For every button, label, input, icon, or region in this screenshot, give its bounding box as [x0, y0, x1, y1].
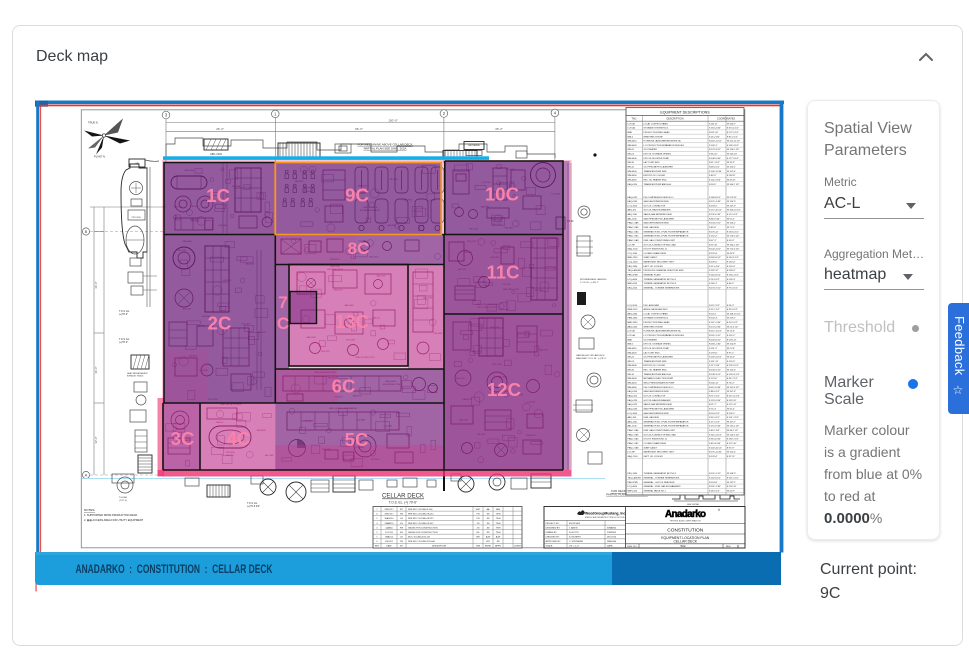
svg-text:LCP-4B: LCP-4B [628, 123, 636, 125]
svg-text:KBQ-4110: KBQ-4110 [628, 287, 638, 289]
svg-text:DWG. NO.:: DWG. NO.: [627, 546, 638, 548]
svg-text:DRAWN BY:: DRAWN BY: [546, 531, 558, 534]
svg-text:DRY OIL STORAGE VESSEL: DRY OIL STORAGE VESSEL [644, 343, 672, 346]
svg-text:4JAN10: 4JAN10 [385, 526, 393, 529]
svg-text:OIL TREATER: OIL TREATER [644, 338, 658, 341]
svg-text:W 176'-3 1/2": W 176'-3 1/2" [727, 236, 740, 238]
svg-text:LOCAL CONTROL PANEL: LOCAL CONTROL PANEL [644, 312, 669, 315]
svg-text:S 58'-9 1/2": S 58'-9 1/2" [709, 491, 720, 493]
svg-text:E 117'-11 1/2": E 117'-11 1/2" [727, 395, 740, 397]
svg-text:S 114'-4 3/4": S 114'-4 3/4" [709, 179, 721, 181]
svg-text:PBQ-1330: PBQ-1330 [628, 473, 639, 475]
svg-text:DESCRIPTION: DESCRIPTION [666, 118, 683, 121]
svg-text:LACT UNIT SKID: LACT UNIT SKID [644, 351, 661, 354]
svg-text:PBA-1 OAS: PBA-1 OAS [628, 446, 640, 449]
svg-text:N 160'-11": N 160'-11" [709, 383, 719, 385]
svg-text:WE-20: WE-20 [628, 149, 635, 151]
svg-text:PBA-1 OAC: PBA-1 OAC [628, 438, 640, 441]
svg-text:JW: JW [487, 523, 490, 525]
svg-text:KAQ-0125: KAQ-0125 [628, 196, 639, 199]
svg-text:REC. OIL HEATER SKID: REC. OIL HEATER SKID [644, 369, 668, 372]
svg-text:WM-4040: WM-4040 [628, 171, 638, 173]
svg-text:W 137'-1": W 137'-1" [727, 482, 736, 484]
svg-text:GENERATOR NO.1 FUEL FILTER/SEP: GENERATOR NO.1 FUEL FILTER/SEPARATOR [644, 230, 689, 233]
svg-text:TAG: TAG [632, 118, 637, 121]
svg-text:7: 7 [278, 293, 287, 312]
svg-text:N 162'-11 1/2": N 162'-11 1/2" [709, 141, 722, 143]
svg-text:8C: 8C [348, 239, 370, 258]
svg-text:S 133'-11 1/2": S 133'-11 1/2" [709, 357, 722, 359]
svg-text:N 133'-4": N 133'-4" [709, 456, 718, 458]
svg-text:S 80'-1 3/4": S 80'-1 3/4" [709, 430, 720, 432]
svg-text:S 131'-2": S 131'-2" [709, 348, 718, 350]
svg-text:S 161'-8": S 161'-8" [709, 123, 718, 125]
svg-text:W 151'-4": W 151'-4" [727, 171, 736, 173]
svg-text:S 168'-8 1/2": S 168'-8 1/2" [709, 197, 721, 199]
svg-text:9: 9 [737, 544, 739, 548]
svg-text:MOC #DC480-2013-147: MOC #DC480-2013-147 [408, 537, 431, 539]
svg-text:CELLAR DECK: CELLAR DECK [673, 540, 697, 544]
svg-text:E 100'-3": E 100'-3" [727, 279, 736, 281]
svg-text:W 152'-6": W 152'-6" [727, 370, 736, 372]
svg-text:18AUG04: 18AUG04 [607, 540, 617, 543]
svg-text:S 85'-10 3/4": S 85'-10 3/4" [709, 443, 721, 445]
svg-text:W 110'-2 1/2": W 110'-2 1/2" [727, 426, 740, 428]
svg-text:W 119'-1": W 119'-1" [727, 318, 736, 320]
svg-text:N 176'-11": N 176'-11" [709, 231, 719, 233]
svg-text:KAQ-0120: KAQ-0120 [628, 399, 639, 402]
svg-text:S 17'-5 1/2": S 17'-5 1/2" [709, 421, 720, 423]
svg-text:ABQ-1110: ABQ-1110 [628, 420, 638, 423]
svg-text:5C: 5C [345, 429, 369, 450]
svg-text:WM-4040: WM-4040 [628, 378, 638, 380]
svg-text:9C: 9C [345, 185, 369, 206]
svg-text:1NOV01: 1NOV01 [385, 541, 394, 543]
svg-text:S 132'-8 1/2": S 132'-8 1/2" [709, 478, 721, 480]
svg-text:S 96'-10": S 96'-10" [709, 154, 718, 156]
svg-text:OIL PIPELINE PIG LAUNCHER: OIL PIPELINE PIG LAUNCHER [644, 356, 674, 359]
svg-text:E 154'-11": E 154'-11" [727, 486, 737, 488]
svg-text:PER MOC #DC480-OP-012: PER MOC #DC480-OP-012 [408, 523, 434, 525]
svg-text:PBE-1PM2: PBE-1PM2 [628, 275, 639, 277]
svg-text:27APR04: 27APR04 [607, 531, 617, 534]
svg-text:PBA-1 OAC: PBA-1 OAC [628, 230, 640, 233]
svg-text:N 121'-4 3/4": N 121'-4 3/4" [709, 201, 721, 203]
svg-text:WM-4050: WM-4050 [628, 175, 638, 177]
svg-text:N 53'-0 1/2": N 53'-0 1/2" [709, 413, 720, 415]
svg-text:ENGR: ENGR [485, 546, 491, 548]
svg-text:DRY OIL STORAGE VESSEL: DRY OIL STORAGE VESSEL [644, 153, 672, 156]
svg-text:3C: 3C [171, 428, 195, 449]
svg-text:CHECKED BY:: CHECKED BY: [546, 537, 560, 539]
svg-text:1C: 1C [206, 185, 230, 206]
svg-text:WM-4050: WM-4050 [628, 383, 638, 385]
svg-text:TWH: TWH [496, 523, 501, 525]
svg-text:PROJECT NO.: PROJECT NO. [546, 523, 560, 525]
svg-text:LANDING AT CELLAR DECK: LANDING AT CELLAR DECK [576, 354, 605, 357]
svg-text:LCQ-4000: LCQ-4000 [628, 279, 638, 281]
svg-text:PBA-1 OAK: PBA-1 OAK [628, 222, 640, 225]
svg-text:LCQ-2010: LCQ-2010 [628, 305, 638, 307]
svg-text:N 48'-0 1/2": N 48'-0 1/2" [709, 167, 720, 169]
svg-text:JW: JW [487, 514, 490, 516]
svg-text:MBD: MBD [628, 339, 633, 341]
svg-text:E 163'-5 1/2": E 163'-5 1/2" [727, 231, 739, 233]
svg-text:WE-10: WE-10 [628, 374, 635, 376]
svg-text:MBL6: MBL6 [628, 136, 634, 138]
svg-text:WE-24: WE-24 [628, 361, 635, 363]
svg-text:E 136'-3 1/2": E 136'-3 1/2" [727, 145, 739, 147]
svg-text:MBL6: MBL6 [628, 344, 634, 346]
svg-text:PER MOC #DC480-OR-212: PER MOC #DC480-OR-212 [408, 518, 434, 520]
svg-text:N. BOTTS: N. BOTTS [569, 532, 579, 534]
svg-text:E 177'-3 1/2": E 177'-3 1/2" [727, 158, 739, 160]
svg-text:PBA-1 OBK: PBA-1 OBK [628, 433, 640, 436]
svg-text:W 172'-6 1/2": W 172'-6 1/2" [727, 249, 740, 251]
svg-text:WATER MIST RECOVERY UNIT: WATER MIST RECOVERY UNIT [644, 451, 675, 454]
svg-text:AJW: AJW [486, 536, 490, 539]
svg-text:CLOSED DRAIN DRUM: CLOSED DRAIN DRUM [644, 442, 667, 445]
svg-text:JW: JW [497, 541, 500, 543]
svg-text:WM-4060: WM-4060 [628, 179, 638, 181]
svg-text:W 45'-2": W 45'-2" [727, 408, 735, 410]
svg-text:45'-0": 45'-0" [495, 127, 503, 131]
svg-text:PER MOC #DC480-OR-212: PER MOC #DC480-OR-212 [408, 514, 434, 516]
svg-text:4307/13463: 4307/13463 [569, 523, 581, 525]
svg-text:W 107'-7": W 107'-7" [727, 421, 736, 423]
svg-text:S 129'-9 3/4": S 129'-9 3/4" [709, 400, 721, 402]
svg-text:E 163'-8": E 163'-8" [727, 175, 736, 177]
svg-text:Anadarko: Anadarko [665, 509, 706, 520]
svg-text:12C: 12C [487, 379, 521, 400]
svg-text:REV.:: REV.: [726, 546, 732, 548]
svg-text:MBK-2420: MBK-2420 [628, 322, 639, 324]
svg-text:S 122'-2": S 122'-2" [709, 236, 718, 238]
svg-text:UTILITY STATION NO.11: UTILITY STATION NO.11 [644, 248, 668, 251]
svg-text:WE-10: WE-10 [628, 167, 635, 169]
svg-text:T.O.S. EL. (+)85'-7": T.O.S. EL. (+)85'-7" [580, 282, 599, 284]
svg-text:SALES GAS METERING SKID: SALES GAS METERING SKID [644, 403, 673, 406]
svg-text:S 144'-8 1/2": S 144'-8 1/2" [709, 275, 721, 277]
svg-text:ISSUED FOR CONSTRUCTION: ISSUED FOR CONSTRUCTION [408, 527, 438, 529]
svg-text:TURBINE GENERATOR SET NO.1: TURBINE GENERATOR SET NO.1 [644, 278, 678, 281]
svg-text:SUMP CADDY: SUMP CADDY [644, 446, 658, 449]
svg-text:E 119'-2": E 119'-2" [727, 335, 736, 337]
svg-text:PIG COMPRESSOR SKID NO.1: PIG COMPRESSOR SKID NO.1 [644, 197, 675, 199]
svg-text:WM-4030: WM-4030 [628, 158, 638, 160]
svg-text:E 150'-5": E 150'-5" [727, 361, 736, 363]
svg-text:E 15'-5 1/2": E 15'-5 1/2" [727, 214, 738, 216]
svg-text:WBF-2110: WBF-2110 [628, 309, 639, 311]
svg-text:ENERGY AND INFRASTRUCTURE SOLU: ENERGY AND INFRASTRUCTURE SOLUTIONS [585, 516, 625, 519]
svg-text:N 155'-6": N 155'-6" [709, 253, 718, 255]
svg-text:ABL-1100: ABL-1100 [628, 425, 638, 428]
svg-text:S 133'-11": S 133'-11" [709, 270, 719, 272]
svg-text:WM-4030: WM-4030 [628, 365, 638, 367]
svg-text:MBD: MBD [628, 132, 633, 134]
svg-text:ABQ-1110: ABQ-1110 [628, 213, 638, 216]
svg-text:CELLAR DECK: CELLAR DECK [382, 494, 424, 500]
svg-text:N 104'-9 1/2": N 104'-9 1/2" [709, 223, 721, 225]
svg-text:E 59'-11 1/2": E 59'-11 1/2" [727, 128, 739, 130]
svg-text:S 89'-8": S 89'-8" [709, 227, 717, 229]
svg-text:ABQ-2420: ABQ-2420 [628, 325, 639, 328]
svg-text:S 104'-10 1/2": S 104'-10 1/2" [709, 447, 722, 449]
svg-text:TURBINE GENERATOR SET NO.2: TURBINE GENERATOR SET NO.2 [644, 282, 678, 285]
svg-text:WALKWAY T.O.S. EL. (+)79'-0": WALKWAY T.O.S. EL. (+)79'-0" [576, 357, 606, 360]
svg-text:13C: 13C [335, 311, 369, 332]
svg-text:E 101'-7 1/2": E 101'-7 1/2" [727, 417, 739, 419]
svg-text:LCT-HP: LCT-HP [628, 244, 636, 246]
svg-text:N 86'-9 3/4": N 86'-9 3/4" [709, 218, 720, 220]
svg-text:PER MOC #DC480-2011-046: PER MOC #DC480-2011-046 [408, 541, 436, 543]
svg-text:PRODUCTION WELLHEAD: PRODUCTION WELLHEAD [644, 131, 670, 134]
svg-text:E 138'-4": E 138'-4" [727, 270, 736, 272]
svg-text:DRY OIL BOOSTER PUMP: DRY OIL BOOSTER PUMP [644, 348, 670, 350]
svg-text:S 22'-1 1/2": S 22'-1 1/2" [709, 309, 720, 311]
svg-text:N 148'-9 3/4": N 148'-9 3/4" [709, 158, 721, 160]
svg-text:S 89'-0": S 89'-0" [709, 175, 717, 177]
svg-text:N 175'-11 3/4": N 175'-11 3/4" [709, 452, 722, 454]
svg-text:EXPORT OIL COOLER: EXPORT OIL COOLER [644, 365, 666, 367]
svg-text:GENERAL PLANT: GENERAL PLANT [644, 274, 662, 277]
svg-text:APPROVED BY:: APPROVED BY: [546, 540, 562, 543]
svg-text:6C: 6C [332, 376, 356, 397]
svg-text:TURBINE GENERATOR SET NO.2: TURBINE GENERATOR SET NO.2 [644, 472, 678, 475]
svg-text:GAQ-7100: GAQ-7100 [628, 248, 639, 251]
svg-text:LCP-4A: LCP-4A [628, 334, 636, 337]
svg-text:FLOWLINE LAUNCHER/RECEIVER 1A: FLOWLINE LAUNCHER/RECEIVER 1A [644, 330, 682, 333]
svg-text:S 96'-10 3/4": S 96'-10 3/4" [709, 439, 721, 441]
svg-text:DATE: DATE [386, 545, 392, 548]
svg-text:(+)78'-0": (+)78'-0" [119, 313, 128, 316]
svg-text:W 172'-11": W 172'-11" [727, 197, 737, 199]
svg-text:SALES GAS METERING SKID: SALES GAS METERING SKID [644, 213, 673, 216]
svg-text:FUEL GAS SKID: FUEL GAS SKID [644, 416, 660, 419]
svg-text:GAS DEHYDRATION SKID: GAS DEHYDRATION SKID [644, 200, 670, 203]
svg-text:30MAR04: 30MAR04 [607, 526, 617, 529]
svg-text:E 80'-2": E 80'-2" [727, 283, 735, 285]
svg-text:T. AIKEN: T. AIKEN [569, 526, 578, 529]
svg-text:10C: 10C [485, 184, 519, 205]
svg-text:PBA-1 OAS: PBA-1 OAS [628, 239, 640, 242]
svg-text:E 126'-9 1/2": E 126'-9 1/2" [727, 365, 739, 367]
svg-text:PBA-1 OBC: PBA-1 OBC [628, 235, 640, 238]
svg-text:E 175'-10": E 175'-10" [727, 443, 737, 445]
svg-text:A: A [85, 473, 88, 478]
svg-text:N 142'-4 1/2": N 142'-4 1/2" [709, 249, 721, 251]
svg-text:MBF-0110: MBF-0110 [628, 491, 638, 493]
svg-text:W 107'-3": W 107'-3" [727, 391, 736, 393]
svg-text:W 49'-11": W 49'-11" [727, 179, 736, 181]
svg-text:DEPT. OIL COOLER: DEPT. OIL COOLER [644, 456, 664, 458]
svg-text:KAQ-0110: KAQ-0110 [628, 183, 638, 186]
svg-text:W 23'-5 1/2": W 23'-5 1/2" [727, 326, 739, 328]
svg-text:WATER MIST RECOVERY UNIT: WATER MIST RECOVERY UNIT [644, 261, 675, 264]
svg-text:E 32'-8 1/2": E 32'-8 1/2" [727, 309, 738, 311]
svg-text:LCQ-4000: LCQ-4000 [628, 486, 638, 488]
svg-text:GENERAL - TURBINE GENERATORS: GENERAL - TURBINE GENERATORS [644, 286, 680, 289]
svg-text:30AUG10: 30AUG10 [385, 517, 395, 520]
svg-text:N 117'-11 1/2": N 117'-11 1/2" [709, 331, 722, 333]
svg-text:N 71'-5 1/2": N 71'-5 1/2" [709, 395, 720, 397]
svg-text:36'-0": 36'-0" [94, 281, 98, 288]
svg-text:(+)78'-0": (+)78'-0" [119, 341, 128, 344]
svg-text:W 14'-3": W 14'-3" [727, 331, 735, 333]
svg-text:AJW: AJW [496, 536, 500, 539]
svg-text:FUEL GAS SKID: FUEL GAS SKID [644, 226, 660, 229]
svg-text:CHK: CHK [476, 546, 481, 548]
svg-text:ABL-1100: ABL-1100 [628, 217, 638, 220]
svg-text:GENERATOR NO.1 FUEL FILTER/SEP: GENERATOR NO.1 FUEL FILTER/SEPARATOR [644, 420, 689, 423]
svg-text:N 102'-4": N 102'-4" [709, 318, 718, 320]
svg-text:TRANSFER PUMP AND HLA: TRANSFER PUMP AND HLA [644, 183, 672, 186]
svg-text:ZG: ZG [400, 523, 403, 525]
svg-text:APPR: APPR [495, 545, 501, 548]
svg-text:WM-4010: WM-4010 [628, 141, 638, 143]
svg-text:PRODUCTION WELLHEAD: PRODUCTION WELLHEAD [644, 321, 670, 324]
svg-text:W 116'-1": W 116'-1" [727, 167, 736, 169]
svg-text:INTERMEDIATE LANDING: INTERMEDIATE LANDING [580, 278, 607, 281]
svg-text:PW: PW [400, 527, 403, 529]
svg-text:B: B [85, 229, 88, 234]
svg-text:S. RICHERT: S. RICHERT [569, 537, 581, 539]
svg-text:WE-20: WE-20 [628, 357, 635, 359]
svg-text:T.O.S. EL. (+) 70'-6": T.O.S. EL. (+) 70'-6" [389, 501, 417, 505]
svg-text:E 78'-3": E 78'-3" [727, 383, 735, 385]
svg-text:N 67'-1": N 67'-1" [709, 240, 717, 242]
svg-text:L.P. PRODUCTION SEPARATOR MODU: L.P. PRODUCTION SEPARATOR MODULE [644, 144, 685, 147]
svg-text:W 160'-2 1/2": W 160'-2 1/2" [727, 244, 740, 246]
svg-text:W 32'-0": W 32'-0" [727, 357, 735, 359]
svg-text:LCQ-1000: LCQ-1000 [628, 205, 638, 207]
svg-text:PBQ-1330: PBQ-1330 [628, 266, 639, 268]
svg-text:WM-4010: WM-4010 [628, 348, 638, 350]
svg-text:ISSUED FOR CONSTRUCTION: ISSUED FOR CONSTRUCTION [408, 532, 438, 534]
svg-text:WR: WR [476, 537, 480, 539]
svg-text:S 130'-4 3/4": S 130'-4 3/4" [709, 128, 721, 130]
svg-text:96'-0": 96'-0" [355, 127, 363, 131]
svg-text:GENERAL VALVE NO.1: GENERAL VALVE NO.1 [644, 490, 667, 493]
svg-text:WE-30: WE-30 [628, 162, 635, 164]
svg-text:S 21'-0 3/4": S 21'-0 3/4" [709, 266, 720, 268]
svg-text:28OCT04: 28OCT04 [607, 537, 617, 539]
svg-text:E 120'-9": E 120'-9" [727, 266, 736, 268]
svg-text:46'-0": 46'-0" [216, 127, 224, 131]
svg-text:E 141'-5 1/2": E 141'-5 1/2" [727, 478, 739, 480]
svg-text:ABC-1332: ABC-1332 [210, 152, 223, 156]
svg-text:PBA-1 OBK: PBA-1 OBK [628, 226, 640, 229]
svg-text:W 49'-3": W 49'-3" [727, 253, 735, 255]
svg-text:36'-0": 36'-0" [94, 366, 98, 373]
svg-text:29NOV17: 29NOV17 [385, 509, 395, 511]
svg-text:N 161'-1 3/4": N 161'-1 3/4" [709, 486, 721, 488]
svg-text:PETROLEUM CORPORATION: PETROLEUM CORPORATION [670, 520, 701, 523]
svg-text:TWH: TWH [496, 514, 501, 516]
svg-text:N 161'-1 1/2": N 161'-1 1/2" [709, 335, 721, 337]
svg-text:TWH: TWH [496, 527, 501, 529]
svg-text:MBK-1220: MBK-1220 [628, 257, 639, 259]
svg-text:N 149'-5": N 149'-5" [709, 262, 718, 264]
svg-text:GENERATOR NO.2 FUEL FILTER/SEP: GENERATOR NO.2 FUEL FILTER/SEPARATOR [644, 425, 689, 428]
svg-text:EQUIPMENT DESCRIPTIONS: EQUIPMENT DESCRIPTIONS [660, 110, 710, 114]
svg-text:GLYCOL/GAS EXCHANGER: GLYCOL/GAS EXCHANGER [644, 399, 671, 402]
svg-text:TRUE N.: TRUE N. [88, 121, 99, 125]
svg-text:WELL PRESSURIZATION PUMP: WELL PRESSURIZATION PUMP [644, 382, 675, 385]
svg-text:WE-30: WE-30 [628, 370, 635, 372]
svg-text:PBA-1 OAK: PBA-1 OAK [628, 429, 640, 432]
svg-text:TWH: TWH [496, 518, 501, 520]
svg-text:TBQ-LADDER: TBQ-LADDER [628, 477, 642, 480]
svg-text:W 150'-5": W 150'-5" [727, 201, 736, 203]
svg-text:1/8" = 1'-0": 1/8" = 1'-0" [569, 546, 579, 548]
svg-text:SUMP CADDY: SUMP CADDY [644, 256, 658, 259]
svg-text:OIL TREATER: OIL TREATER [644, 148, 658, 151]
svg-text:LCP-4A: LCP-4A [628, 127, 636, 130]
svg-text:TWH: TWH [496, 532, 501, 534]
svg-text:GLYCOL/CONTACTOR SKID GAS: GLYCOL/CONTACTOR SKID GAS [644, 243, 677, 246]
svg-text:E 180'-7 1/2": E 180'-7 1/2" [727, 439, 739, 441]
svg-text:N 135'-0 3/4": N 135'-0 3/4" [709, 214, 721, 216]
svg-text:GENERAL - FUEL GAS EXCHANGERS: GENERAL - FUEL GAS EXCHANGERS [644, 485, 682, 488]
svg-text:DRY OIL BOOSTER PUMP: DRY OIL BOOSTER PUMP [644, 158, 670, 160]
svg-text:ANGLE LAUNCHER BOX: ANGLE LAUNCHER BOX [644, 308, 669, 311]
svg-text:1OCT05: 1OCT05 [385, 532, 394, 534]
svg-text:W 38'-7 1/2": W 38'-7 1/2" [727, 430, 739, 432]
svg-text:KBM-2406: KBM-2406 [628, 318, 639, 320]
svg-text:WR: WR [486, 541, 490, 543]
svg-text:S 106'-11 3/4": S 106'-11 3/4" [709, 171, 722, 173]
svg-text:LOCAL CONTROL PANEL: LOCAL CONTROL PANEL [644, 122, 669, 125]
svg-text:(TYP. 4): (TYP. 4) [119, 500, 127, 502]
svg-text:FUEL GAS CONDITIONING UNIT: FUEL GAS CONDITIONING UNIT [644, 429, 676, 432]
svg-text:W 125'-4 1/2": W 125'-4 1/2" [727, 434, 740, 436]
svg-text:GAS DEHYDRATION SKID: GAS DEHYDRATION SKID [644, 412, 670, 415]
svg-text:GENERAL - GLYCOL REBOILER: GENERAL - GLYCOL REBOILER [644, 481, 675, 484]
svg-text:JW: JW [487, 532, 490, 534]
svg-text:W 156'-5 1/2": W 156'-5 1/2" [727, 149, 740, 151]
svg-text:E 116'-11 1/2": E 116'-11 1/2" [727, 374, 740, 376]
svg-text:W 106'-7 1/2": W 106'-7 1/2" [727, 184, 740, 186]
svg-text:KAQ-0130: KAQ-0130 [628, 200, 639, 203]
svg-text:TRANSFER PUMP SKID: TRANSFER PUMP SKID [644, 360, 668, 363]
svg-text:S 71'-2 3/4": S 71'-2 3/4" [709, 365, 720, 367]
svg-text:LCP-4B: LCP-4B [628, 331, 636, 333]
svg-text:4C: 4C [227, 428, 251, 449]
svg-text:REC. OIL HEATER SKID: REC. OIL HEATER SKID [644, 178, 668, 181]
svg-text:W 55'-5": W 55'-5" [727, 218, 735, 220]
svg-text:METHANOL INJECTION PUMP: METHANOL INJECTION PUMP [644, 377, 674, 380]
svg-text:W 42'-9": W 42'-9" [727, 491, 735, 493]
svg-text:S 178'-6": S 178'-6" [709, 352, 718, 354]
svg-text:ANADARKO : CONSTITUTION :: ANADARKO : CONSTITUTION : CELLAR DECK [76, 564, 274, 576]
svg-text:N 23'-7 1/2": N 23'-7 1/2" [709, 305, 720, 307]
svg-text:NOTES:: NOTES: [84, 508, 95, 512]
svg-text:STORAGE SYSTEM NO.5: STORAGE SYSTEM NO.5 [644, 127, 670, 130]
svg-text:LCQ-1000: LCQ-1000 [628, 413, 638, 415]
svg-text:C. STEPHENS: C. STEPHENS [569, 541, 583, 543]
svg-text:TGU-AD: TGU-AD [119, 496, 128, 499]
svg-text:STORAGE SYSTEM NO.5: STORAGE SYSTEM NO.5 [644, 317, 670, 320]
svg-text:W 154'-8": W 154'-8" [727, 344, 736, 346]
svg-text:5MAY14: 5MAY14 [385, 536, 394, 539]
svg-text:OIL PIPELINE PIG LAUNCHER: OIL PIPELINE PIG LAUNCHER [644, 166, 674, 169]
svg-text:C: C [277, 314, 289, 333]
svg-text:DESIGNED BY:: DESIGNED BY: [546, 527, 561, 529]
svg-text:W 108'-0": W 108'-0" [727, 473, 736, 475]
svg-text:E 20'-5 1/2": E 20'-5 1/2" [727, 322, 738, 324]
svg-text:E 37'-8": E 37'-8" [727, 447, 735, 449]
